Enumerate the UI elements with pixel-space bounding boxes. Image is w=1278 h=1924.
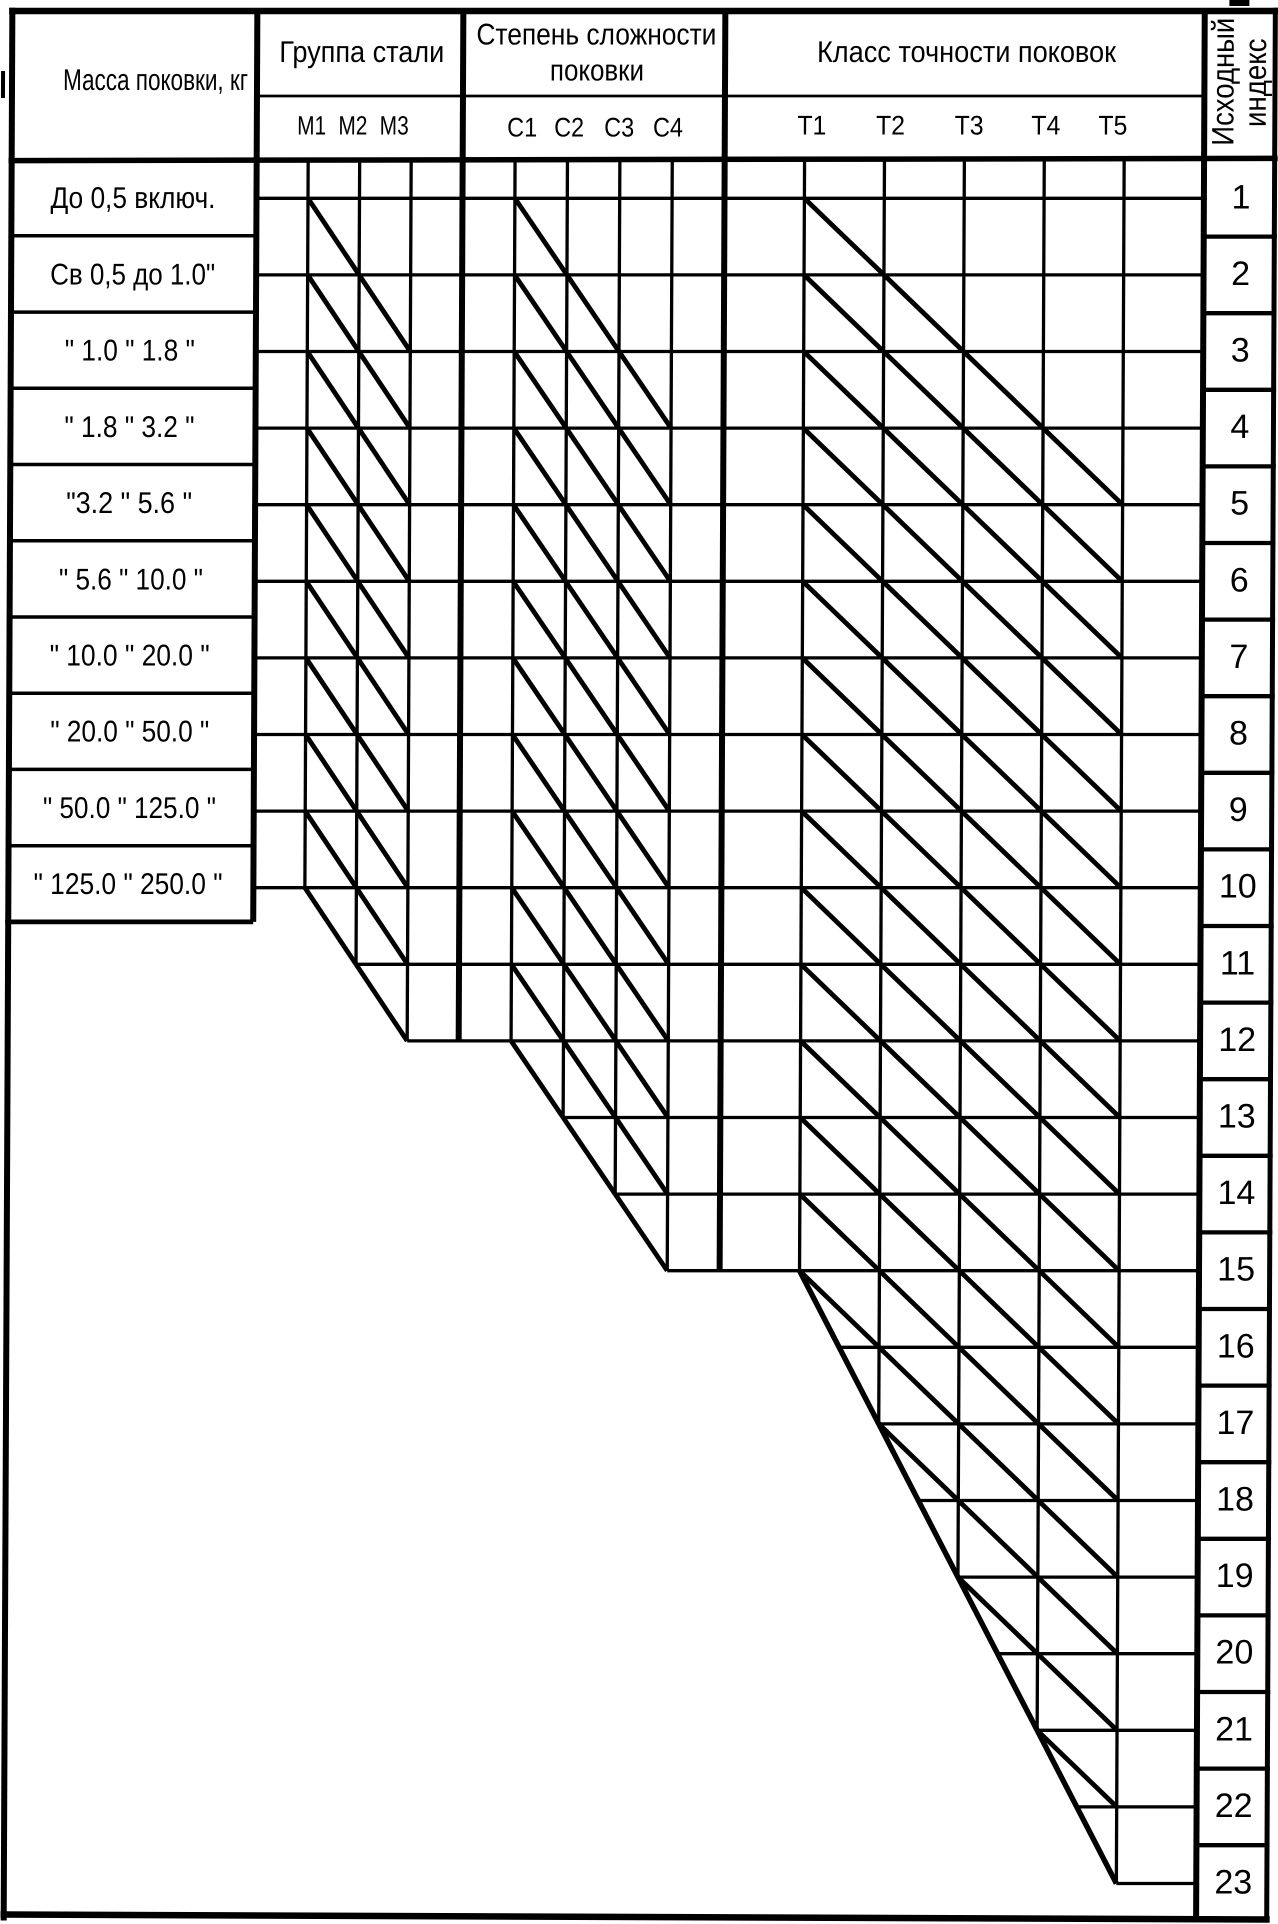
svg-text:Масса поковки, кг: Масса поковки, кг	[63, 64, 248, 97]
svg-text:" 50.0 " 125.0 ": " 50.0 " 125.0 "	[43, 792, 216, 825]
svg-text:20: 20	[1215, 1634, 1253, 1672]
svg-text:19: 19	[1216, 1557, 1254, 1595]
svg-text:Т2: Т2	[876, 111, 905, 141]
svg-text:5: 5	[1230, 485, 1249, 523]
svg-text:17: 17	[1216, 1404, 1254, 1442]
svg-text:Т5: Т5	[1098, 111, 1127, 141]
svg-text:" 1.8 " 3.2 ": " 1.8 " 3.2 "	[64, 411, 194, 444]
svg-text:23: 23	[1214, 1864, 1252, 1902]
svg-text:" 1.0 " 1.8 ": " 1.0 " 1.8 "	[65, 335, 195, 368]
svg-text:Класс точности поковок: Класс точности поковок	[817, 36, 1117, 69]
svg-text:1: 1	[1231, 178, 1250, 216]
svg-text:Т4: Т4	[1031, 111, 1060, 141]
svg-text:6: 6	[1230, 561, 1249, 599]
svg-text:С2: С2	[554, 113, 584, 143]
svg-text:11: 11	[1220, 944, 1255, 982]
svg-text:"3.2 " 5.6 ": "3.2 " 5.6 "	[66, 487, 192, 520]
svg-text:9: 9	[1229, 791, 1248, 829]
svg-text:22: 22	[1215, 1787, 1253, 1825]
svg-text:индекс: индекс	[1238, 38, 1273, 127]
svg-text:21: 21	[1215, 1710, 1253, 1748]
svg-text:" 10.0 " 20.0 ": " 10.0 " 20.0 "	[50, 640, 210, 673]
svg-text:М3: М3	[380, 111, 409, 141]
svg-text:15: 15	[1217, 1251, 1255, 1289]
svg-text:13: 13	[1218, 1098, 1256, 1136]
svg-text:М2: М2	[338, 111, 367, 141]
svg-text:12: 12	[1218, 1021, 1256, 1059]
svg-text:С4: С4	[653, 113, 683, 143]
svg-text:2: 2	[1231, 255, 1250, 293]
svg-text:" 20.0 " 50.0 ": " 20.0 " 50.0 "	[50, 716, 209, 749]
svg-text:Исходный: Исходный	[1205, 18, 1241, 146]
svg-text:поковки: поковки	[550, 55, 644, 88]
svg-text:Группа стали: Группа стали	[279, 36, 444, 69]
svg-text:14: 14	[1217, 1174, 1255, 1212]
svg-text:С1: С1	[507, 113, 537, 143]
svg-text:До 0,5 включ.: До 0,5 включ.	[50, 182, 215, 215]
svg-text:4: 4	[1230, 408, 1249, 446]
svg-text:8: 8	[1229, 715, 1248, 753]
svg-text:" 5.6 " 10.0 ": " 5.6 " 10.0 "	[59, 563, 203, 596]
svg-text:М1: М1	[297, 111, 326, 141]
svg-text:Т1: Т1	[797, 111, 826, 141]
svg-text:Т3: Т3	[955, 111, 984, 141]
svg-text:" 125.0 " 250.0 ": " 125.0 " 250.0 "	[34, 868, 223, 901]
svg-text:С3: С3	[604, 113, 634, 143]
svg-text:Св 0,5 до 1.0": Св 0,5 до 1.0"	[50, 258, 215, 291]
svg-text:Степень сложности: Степень сложности	[476, 19, 716, 52]
svg-text:18: 18	[1216, 1481, 1254, 1519]
svg-text:16: 16	[1217, 1327, 1255, 1365]
svg-text:7: 7	[1229, 638, 1248, 676]
svg-text:3: 3	[1231, 332, 1250, 370]
svg-text:10: 10	[1219, 868, 1257, 906]
